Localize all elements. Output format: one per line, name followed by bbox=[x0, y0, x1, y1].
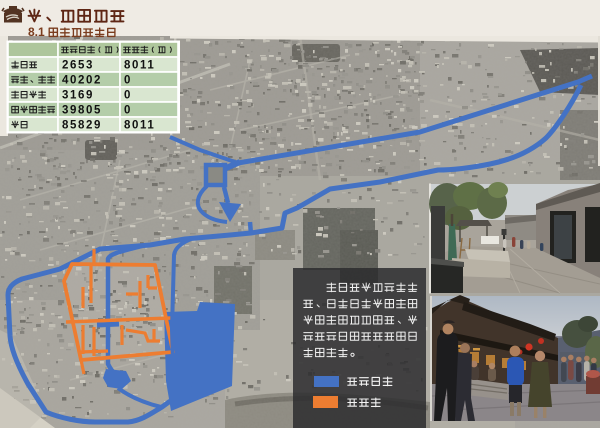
svg-text:2653: 2653 bbox=[62, 59, 94, 71]
svg-text:39805: 39805 bbox=[62, 104, 102, 116]
svg-text:85829: 85829 bbox=[62, 119, 102, 131]
svg-text:8.1: 8.1 bbox=[28, 25, 45, 39]
svg-text:8011: 8011 bbox=[124, 119, 155, 131]
svg-text:40202: 40202 bbox=[62, 74, 102, 86]
svg-text:8011: 8011 bbox=[124, 59, 155, 71]
svg-text:0: 0 bbox=[124, 89, 132, 101]
svg-text:0: 0 bbox=[124, 74, 132, 86]
svg-text:0: 0 bbox=[124, 104, 132, 116]
svg-text:3169: 3169 bbox=[62, 89, 94, 101]
